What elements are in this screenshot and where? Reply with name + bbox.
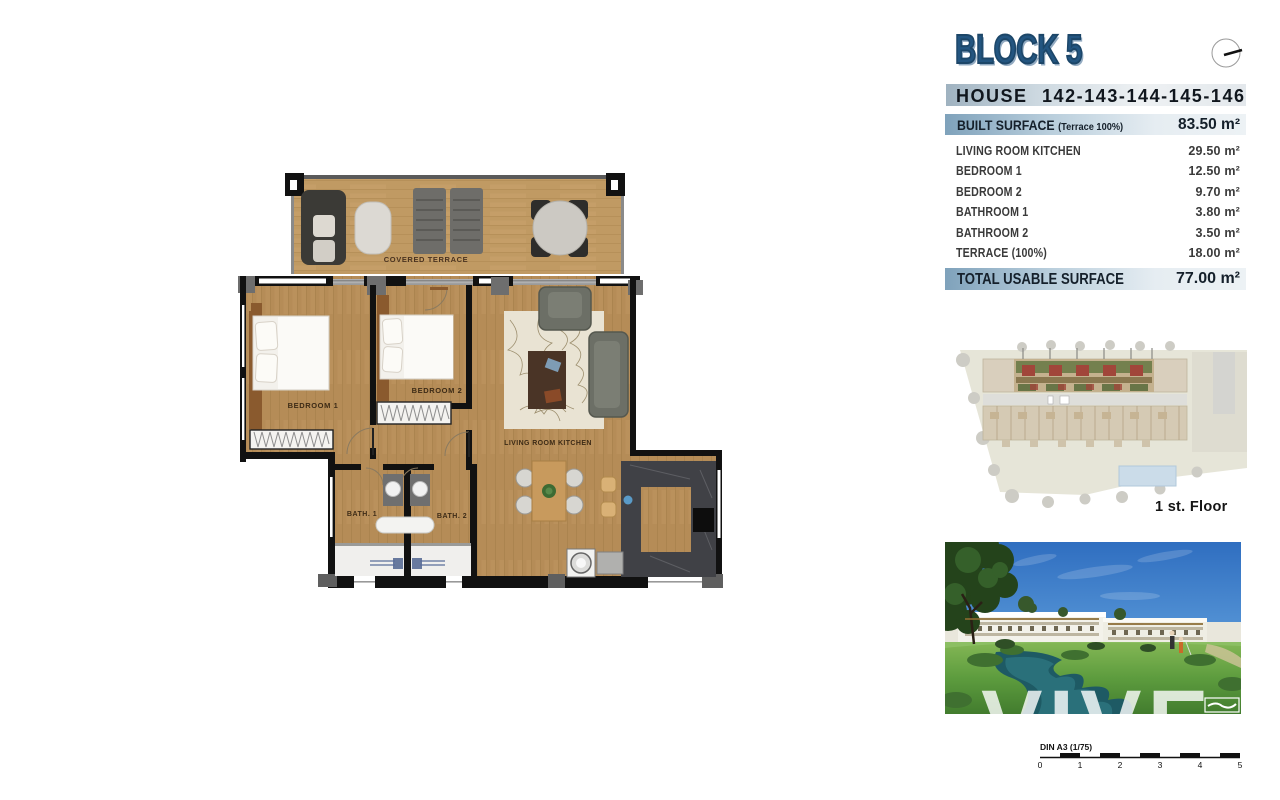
svg-text:1: 1 [1078,760,1083,770]
svg-text:1 st. Floor: 1 st. Floor [1155,499,1228,515]
svg-text:BEDROOM 1: BEDROOM 1 [288,401,339,410]
svg-text:5: 5 [1238,760,1243,770]
svg-text:BATH. 2: BATH. 2 [437,513,467,520]
svg-text:COVERED TERRACE: COVERED TERRACE [384,255,468,264]
svg-text:2: 2 [1118,760,1123,770]
svg-text:VIVE: VIVE [981,672,1215,774]
svg-text:BEDROOM 2: BEDROOM 2 [412,386,463,395]
svg-text:BATH. 1: BATH. 1 [347,511,377,518]
svg-text:4: 4 [1198,760,1203,770]
svg-text:LIVING ROOM KITCHEN: LIVING ROOM KITCHEN [504,440,592,447]
svg-text:DIN A3 (1/75): DIN A3 (1/75) [1040,742,1092,752]
svg-text:3: 3 [1158,760,1163,770]
svg-text:0: 0 [1038,760,1043,770]
